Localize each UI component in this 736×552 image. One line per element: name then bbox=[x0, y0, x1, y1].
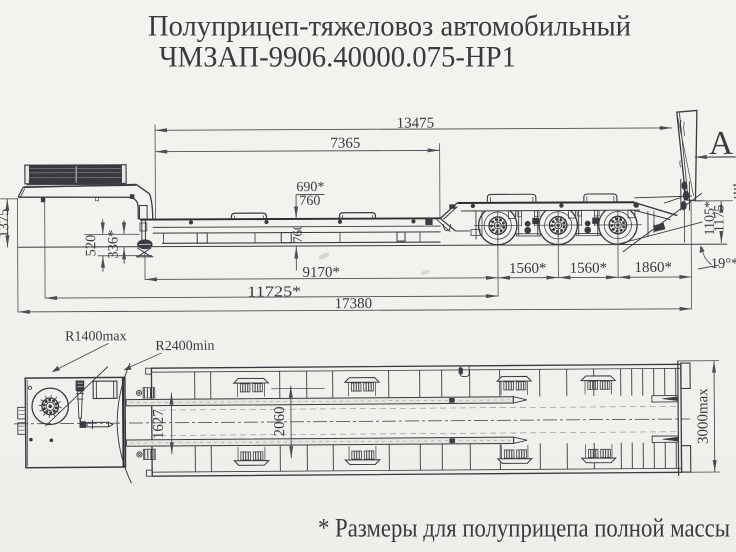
svg-text:R1400max: R1400max bbox=[65, 329, 127, 344]
svg-text:Полуприцеп-тяжеловоз автомобил: Полуприцеп-тяжеловоз автомобильный bbox=[148, 11, 631, 43]
svg-text:17380: 17380 bbox=[335, 296, 373, 312]
svg-text:520: 520 bbox=[83, 235, 99, 257]
svg-text:336*: 336* bbox=[105, 230, 121, 259]
svg-text:R2400min: R2400min bbox=[155, 339, 214, 354]
svg-text:11725*: 11725* bbox=[247, 284, 301, 300]
svg-text:1560*: 1560* bbox=[570, 261, 608, 277]
svg-text:7365: 7365 bbox=[330, 136, 360, 152]
svg-text:13475: 13475 bbox=[397, 115, 435, 131]
svg-text:1175: 1175 bbox=[712, 205, 727, 233]
svg-text:* Размеры для полуприцепа полн: * Размеры для полуприцепа полной массы bbox=[318, 513, 730, 543]
svg-text:ЧМЗАП-9906.40000.075-НР1: ЧМЗАП-9906.40000.075-НР1 bbox=[159, 42, 516, 74]
svg-text:2060: 2060 bbox=[272, 406, 288, 436]
svg-text:1375: 1375 bbox=[0, 209, 12, 238]
svg-text:A: A bbox=[709, 125, 733, 162]
svg-text:9170*: 9170* bbox=[302, 265, 340, 281]
svg-text:760: 760 bbox=[299, 194, 320, 209]
svg-text:1860*: 1860* bbox=[634, 260, 672, 276]
svg-text:1560*: 1560* bbox=[509, 261, 547, 277]
svg-text:19°*: 19°* bbox=[711, 256, 736, 272]
svg-text:3000max: 3000max bbox=[695, 388, 711, 444]
svg-text:1627: 1627 bbox=[151, 409, 167, 440]
